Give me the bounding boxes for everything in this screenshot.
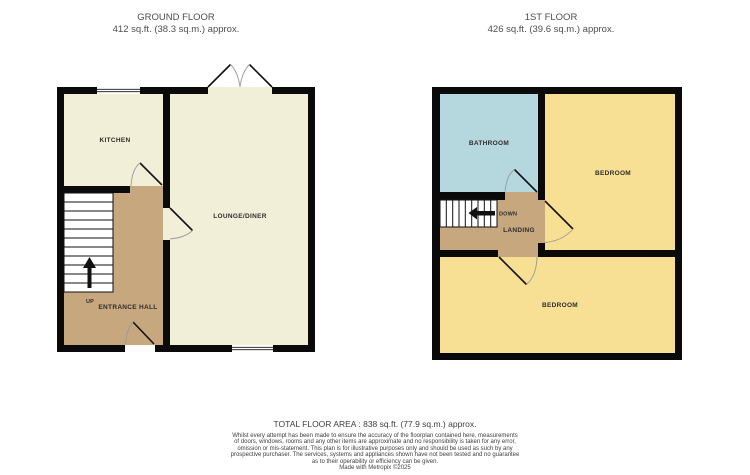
bedroom-divider-wall-upper [538, 87, 545, 200]
bathroom-label: BATHROOM [469, 140, 509, 147]
bottom-bedroom-wall-left [432, 250, 498, 257]
lounge-divider-wall-upper [163, 87, 170, 208]
french-door-gap [208, 87, 272, 94]
ground-floor-title: GROUND FLOOR [41, 12, 311, 24]
up-label: UP [86, 299, 94, 305]
first-floor-area: 426 sq.ft. (39.6 sq.m.) approx. [416, 24, 686, 36]
stairs-down [440, 200, 497, 227]
bedroom-right-door-gap [538, 200, 545, 243]
first-floor-title: 1ST FLOOR [416, 12, 686, 24]
down-label: DOWN [499, 212, 517, 218]
bedroom-right-label: BEDROOM [595, 170, 631, 177]
disclaimer: Whilst every attempt has been made to en… [0, 433, 750, 471]
landing-label: LANDING [503, 227, 535, 234]
lounge-diner-label: LOUNGE/DINER [213, 213, 266, 220]
kitchen-label: KITCHEN [100, 137, 131, 144]
french-doors-swing [208, 65, 272, 88]
stairs-up [64, 193, 113, 292]
lounge-window [232, 345, 273, 352]
kitchen-window [97, 87, 140, 94]
hall-lounge-door-gap [163, 208, 170, 240]
entrance-door-gap [125, 345, 155, 352]
ground-floor-title-block: GROUND FLOOR 412 sq.ft. (38.3 sq.m.) app… [41, 12, 311, 36]
bottom-bedroom-wall-right [538, 250, 682, 257]
bedroom-bottom-label: BEDROOM [542, 302, 578, 309]
ground-floor-plan: KITCHEN LOUNGE/DINER ENTRANCE HALL UP [55, 60, 317, 356]
bottom-bedroom-door-gap [498, 250, 538, 257]
metropix-credit: Made with Metropix ©2025 [0, 465, 750, 471]
kitchen-hall-wall [57, 186, 130, 193]
first-floor-title-block: 1ST FLOOR 426 sq.ft. (39.6 sq.m.) approx… [416, 12, 686, 36]
lounge-divider-wall-lower [163, 240, 170, 352]
bathroom-wall [432, 192, 505, 200]
entrance-hall-label: ENTRANCE HALL [98, 304, 157, 311]
ground-floor-area: 412 sq.ft. (38.3 sq.m.) approx. [41, 24, 311, 36]
first-floor-plan: BATHROOM BEDROOM BEDROOM LANDING DOWN [430, 80, 686, 365]
total-floor-area: TOTAL FLOOR AREA : 838 sq.ft. (77.9 sq.m… [0, 419, 750, 429]
